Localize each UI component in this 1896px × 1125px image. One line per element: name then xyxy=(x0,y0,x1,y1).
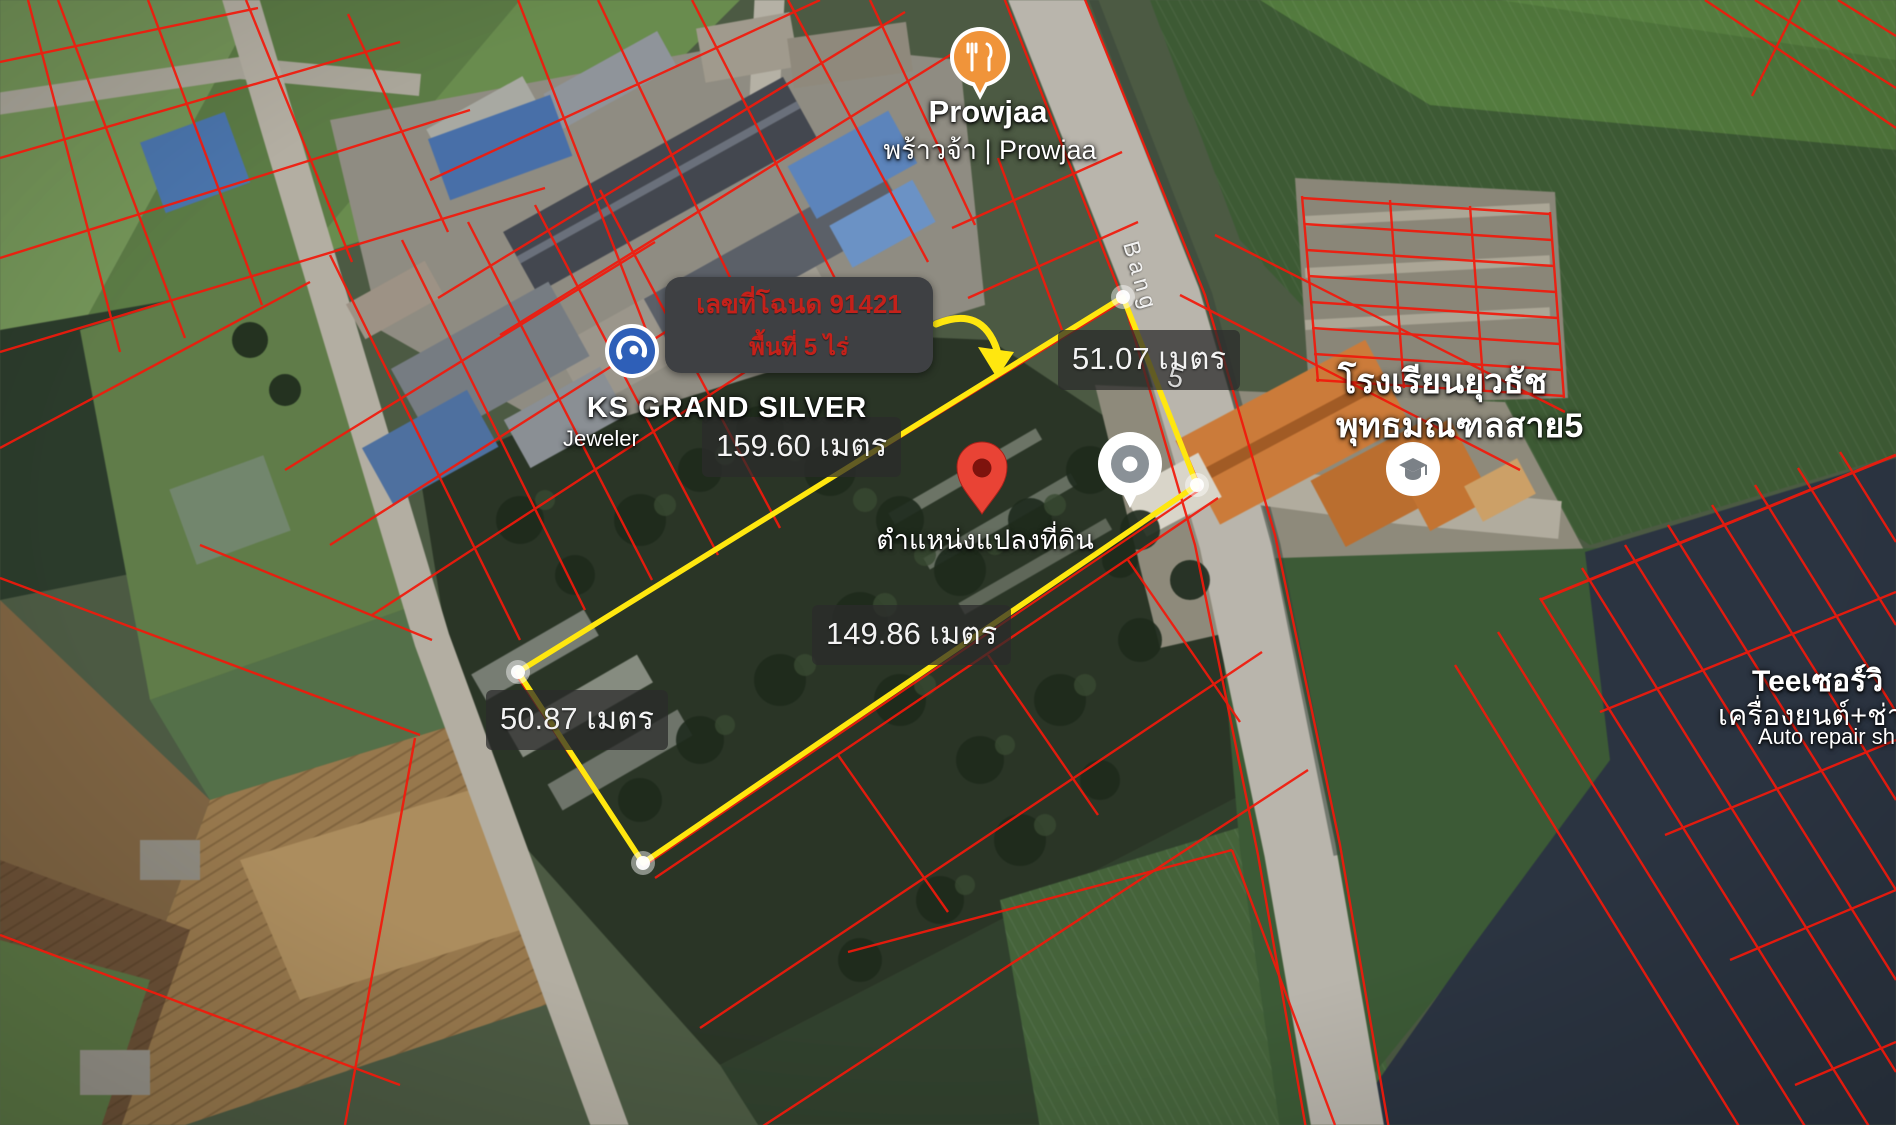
restaurant-subtitle-label[interactable]: พร้าวจ้า | Prowjaa xyxy=(790,128,1190,171)
deed-number-text: เลขที่โฉนด 91421 xyxy=(696,284,902,325)
restaurant-name-label[interactable]: Prowjaa xyxy=(868,94,1108,130)
ks-logo-icon[interactable] xyxy=(605,324,659,378)
measurement-left: 50.87 เมตร xyxy=(486,690,668,750)
school-name-line2[interactable]: พุทธมณฑลสาย5 xyxy=(1336,398,1583,452)
measurement-right: 51.07 เมตร xyxy=(1058,330,1240,390)
jeweler-name-label[interactable]: KS GRAND SILVER xyxy=(527,392,927,425)
auto-repair-name-line3[interactable]: Auto repair sh xyxy=(1758,724,1895,750)
measurement-bottom: 149.86 เมตร xyxy=(812,605,1011,665)
red-map-pin-icon[interactable] xyxy=(957,442,1007,514)
land-pin-label: ตำแหน่งแปลงที่ดิน xyxy=(860,518,1110,561)
jeweler-subtitle-label[interactable]: Jeweler xyxy=(563,426,639,452)
deed-area-text: พื้นที่ 5 ไร่ xyxy=(749,327,849,366)
deed-tooltip: เลขที่โฉนด 91421 พื้นที่ 5 ไร่ xyxy=(665,277,933,373)
restaurant-icon[interactable] xyxy=(950,27,1010,100)
circle-dot-marker-icon[interactable] xyxy=(1098,432,1162,508)
map-canvas[interactable]: เลขที่โฉนด 91421 พื้นที่ 5 ไร่ 159.60 เม… xyxy=(0,0,1896,1125)
measurement-top: 159.60 เมตร xyxy=(702,417,901,477)
